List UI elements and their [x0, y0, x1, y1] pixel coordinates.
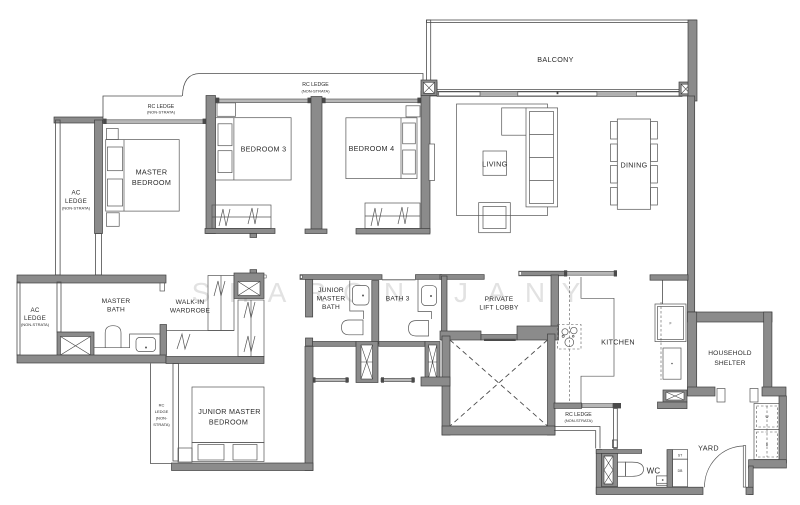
- svg-text:MASTER: MASTER: [136, 168, 168, 177]
- svg-text:(NON-STRATA): (NON-STRATA): [147, 110, 176, 115]
- svg-text:BATH: BATH: [322, 304, 340, 311]
- svg-text:(NON-: (NON-: [156, 416, 168, 421]
- svg-text:RC: RC: [159, 403, 165, 408]
- svg-text:BEDROOM: BEDROOM: [209, 418, 248, 427]
- svg-text:(NON-STRATA): (NON-STRATA): [301, 89, 330, 94]
- svg-text:WC: WC: [647, 467, 661, 476]
- svg-text:N: N: [384, 277, 404, 308]
- svg-text:WARDROBE: WARDROBE: [170, 308, 211, 315]
- svg-text:BEDROOM 3: BEDROOM 3: [241, 145, 287, 154]
- svg-text:(NON-STRATA): (NON-STRATA): [21, 322, 50, 327]
- svg-text:AC: AC: [72, 190, 81, 197]
- svg-text:KITCHEN: KITCHEN: [601, 338, 635, 347]
- svg-text:BALCONY: BALCONY: [537, 55, 573, 64]
- svg-text:(NON-STRATA): (NON-STRATA): [62, 206, 91, 211]
- svg-text:LIFT LOBBY: LIFT LOBBY: [479, 305, 519, 312]
- svg-text:LEDGE: LEDGE: [24, 315, 46, 322]
- svg-text:J: J: [454, 277, 468, 308]
- svg-text:AC: AC: [31, 307, 40, 314]
- svg-text:BEDROOM 4: BEDROOM 4: [349, 144, 395, 153]
- svg-text:DB: DB: [678, 469, 683, 473]
- svg-text:A: A: [268, 277, 287, 308]
- svg-text:BEDROOM: BEDROOM: [132, 178, 171, 187]
- svg-text:STRATA): STRATA): [153, 422, 170, 427]
- svg-text:N: N: [525, 277, 545, 308]
- svg-text:PRIVATE: PRIVATE: [485, 296, 514, 303]
- svg-text:WALK-IN: WALK-IN: [176, 299, 205, 306]
- svg-text:SHELTER: SHELTER: [714, 360, 745, 367]
- svg-text:JUNIOR MASTER: JUNIOR MASTER: [198, 407, 261, 416]
- svg-text:MASTER: MASTER: [317, 296, 346, 303]
- svg-text:HOUSEHOLD: HOUSEHOLD: [708, 350, 752, 357]
- svg-text:LEDGE: LEDGE: [155, 409, 169, 414]
- svg-text:DINING: DINING: [621, 160, 648, 169]
- svg-text:LIVING: LIVING: [482, 160, 507, 169]
- svg-text:A: A: [488, 277, 507, 308]
- svg-text:Y: Y: [562, 277, 581, 308]
- svg-text:F: F: [669, 322, 671, 326]
- svg-text:LEDGE: LEDGE: [65, 198, 87, 205]
- svg-text:BATH 3: BATH 3: [386, 296, 410, 303]
- svg-text:YARD: YARD: [698, 444, 719, 453]
- svg-text:JUNIOR: JUNIOR: [318, 287, 344, 294]
- svg-text:BATH: BATH: [107, 307, 125, 314]
- svg-text:(NON-STRATA): (NON-STRATA): [564, 418, 593, 423]
- svg-text:RC LEDGE: RC LEDGE: [302, 82, 329, 88]
- svg-text:MASTER: MASTER: [102, 298, 131, 305]
- svg-text:ST: ST: [678, 453, 682, 457]
